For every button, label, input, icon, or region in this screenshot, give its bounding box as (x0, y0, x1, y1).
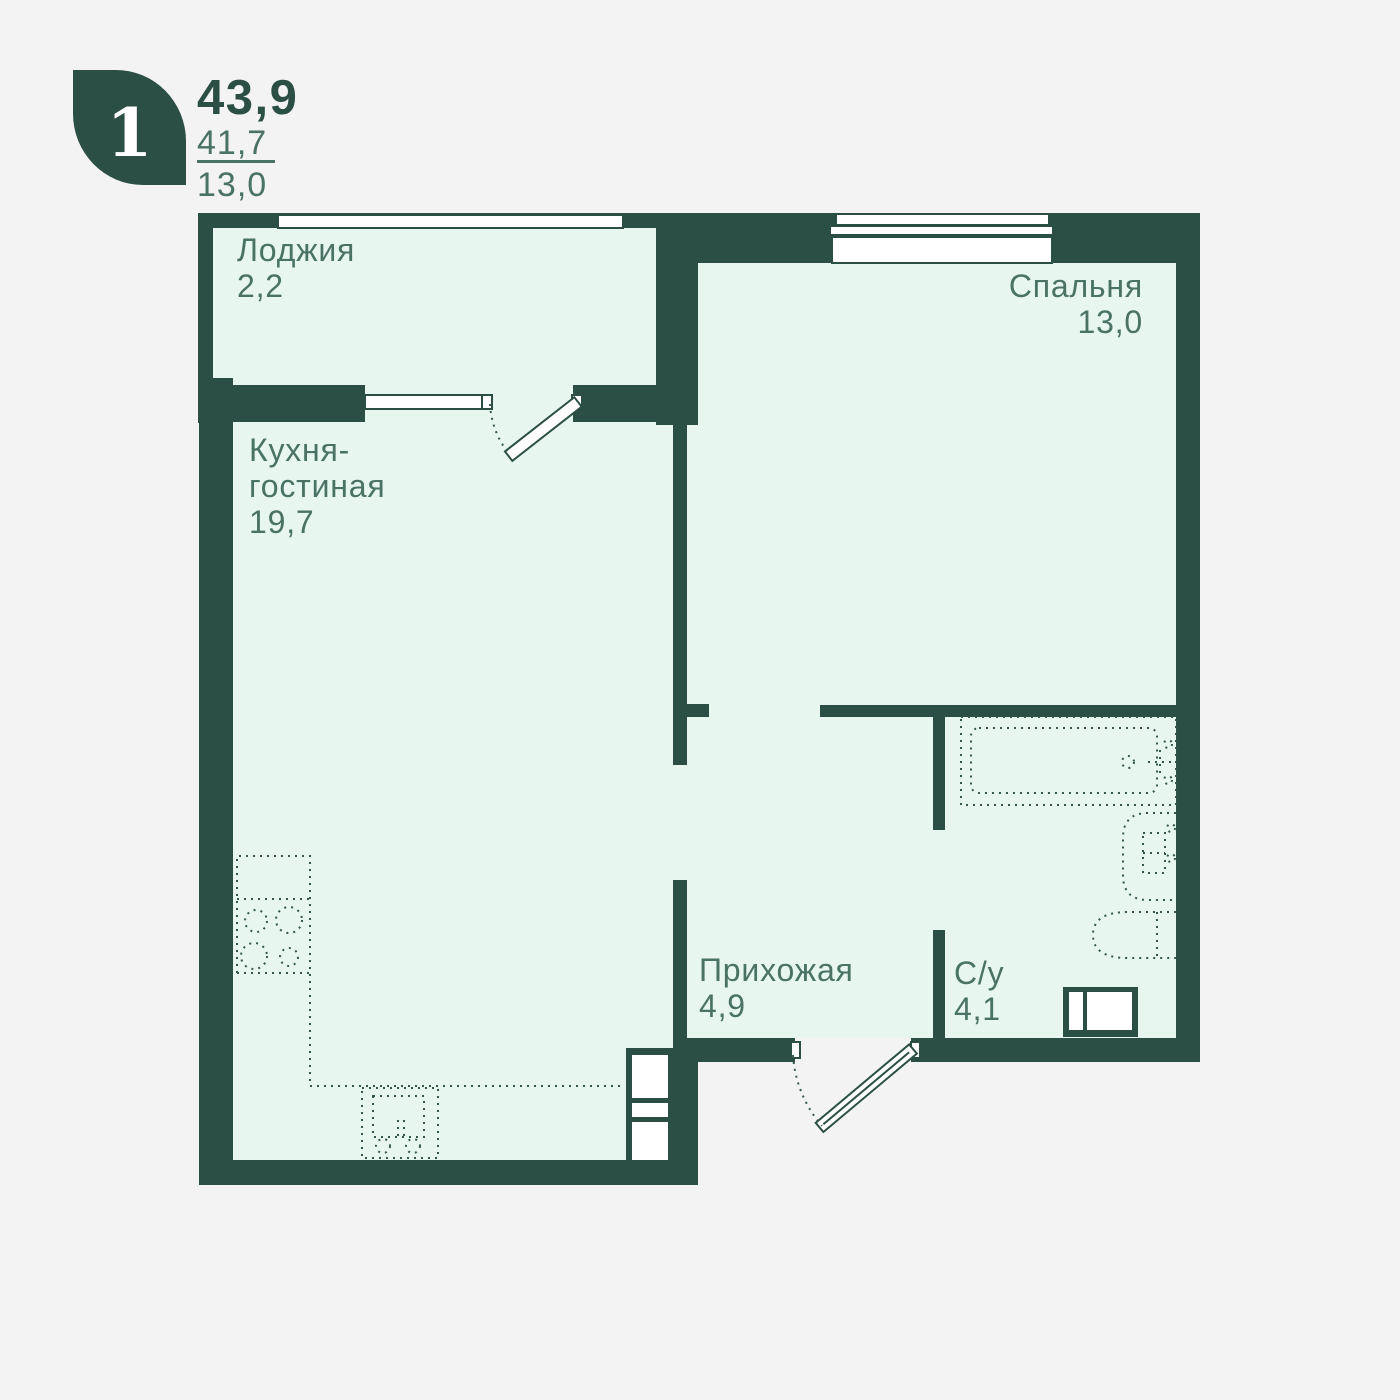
window-bedroom-sill (832, 237, 1052, 263)
wall-bath-left-upper (933, 717, 945, 830)
room-name-hallway: Прихожая (699, 952, 854, 988)
wall-loggia-kitchen-a (198, 385, 365, 422)
room-label-kitchen-living: Кухня- гостиная 19,7 (249, 432, 386, 540)
vent-shaft-kitchen-cell-2 (632, 1103, 668, 1117)
wall-right-exterior (1176, 213, 1200, 1062)
room-label-hallway: Прихожая 4,9 (699, 952, 854, 1024)
wall-loggia-kitchen-b (573, 385, 663, 422)
window-loggia-top (278, 215, 623, 228)
wall-hall-bottom-right (911, 1038, 1200, 1062)
floorplan-drawing (0, 0, 1400, 1400)
room-name-loggia: Лоджия (237, 232, 355, 268)
room-label-bathroom: С/у 4,1 (954, 955, 1004, 1027)
room-area-hallway: 4,9 (699, 988, 854, 1024)
floor-fill-right-wing (656, 213, 1200, 1062)
window-loggia-kitchen (365, 395, 483, 409)
room-area-bedroom: 13,0 (1009, 304, 1143, 340)
room-name-kitchen-line2: гостиная (249, 468, 386, 504)
room-area-kitchen-living: 19,7 (249, 504, 386, 540)
wall-kitchen-bottom (199, 1160, 698, 1185)
wall-kitchen-hall-lower (673, 880, 687, 1038)
window-bedroom-outer (836, 214, 1049, 225)
room-label-bedroom: Спальня 13,0 (1009, 268, 1143, 340)
wall-kitchen-left (199, 378, 233, 1185)
vent-shaft-bathroom-cell-1 (1069, 992, 1083, 1030)
vent-shaft-bathroom-cell-2 (1087, 992, 1132, 1030)
room-label-loggia: Лоджия 2,2 (237, 232, 355, 304)
wall-bath-left-lower (933, 930, 945, 1038)
wall-bedroom-bottom (820, 705, 1176, 717)
vent-shaft-kitchen-cell-3 (632, 1122, 668, 1160)
room-area-loggia: 2,2 (237, 268, 355, 304)
room-name-bathroom: С/у (954, 955, 1004, 991)
floor-fill-left-wing (198, 213, 698, 1185)
wall-hall-stub (673, 704, 709, 717)
floorplan-page: 1 43,9 41,7 13,0 (0, 0, 1400, 1400)
vent-shaft-bathroom (1063, 987, 1138, 1037)
window-bedroom-frame (830, 226, 1053, 235)
entry-door-swing-arc (793, 1055, 822, 1126)
window-bedroom (830, 214, 1053, 263)
room-area-bathroom: 4,1 (954, 991, 1004, 1027)
vent-shaft-kitchen-cell-1 (632, 1055, 668, 1098)
vent-shaft-kitchen (626, 1048, 698, 1185)
room-name-kitchen-line1: Кухня- (249, 432, 386, 468)
window-loggia-kitchen-endcap (482, 395, 492, 409)
room-name-bedroom: Спальня (1009, 268, 1143, 304)
